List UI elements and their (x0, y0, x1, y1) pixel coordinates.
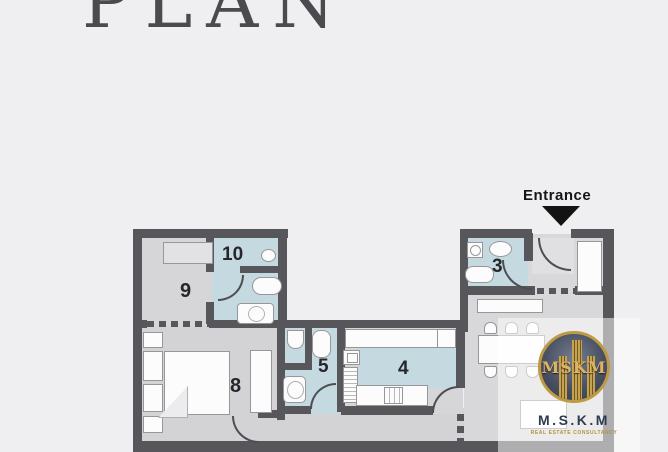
room-4-label: 4 (398, 358, 409, 380)
room3-toilet (465, 266, 494, 283)
wall-mid-top (277, 320, 465, 328)
mskm-logo-emblem: MSKM (538, 331, 610, 403)
washing-machine-door-icon (470, 245, 481, 256)
room10-sink (261, 249, 276, 262)
room5-toilet (312, 330, 331, 358)
dining-chair (484, 366, 497, 378)
wall-kitchen-bottom (341, 406, 433, 415)
room5-sink-bowl-icon (287, 381, 304, 399)
wall-right-wing-top-left (460, 229, 532, 238)
kitchen-sink-bowl-icon (347, 353, 358, 363)
kitchen-counter-top (345, 329, 456, 348)
wall-room10-bottom (240, 266, 282, 273)
room-10-label: 10 (222, 244, 243, 266)
room-8-label: 8 (230, 375, 241, 398)
opening-corridor-dining (457, 414, 464, 444)
wall-room5-inner-v (305, 328, 312, 370)
logo-emblem-text: MSKM (542, 358, 607, 377)
wall-left-wing-right (278, 229, 287, 328)
floor-plan-page: PLAN Entrance (0, 0, 668, 452)
wall-outer-left (133, 229, 142, 452)
entrance-label: Entrance (523, 187, 591, 204)
wall-room9-bottom-left (133, 320, 147, 328)
nightstand-bottom (143, 416, 163, 433)
bathtub (252, 277, 282, 295)
logo-tagline: REAL ESTATE CONSULTANCY (526, 430, 622, 436)
nightstand-top (143, 332, 163, 348)
kitchen-inner-floor (358, 346, 460, 388)
wall-right-wing-top-right (571, 229, 614, 238)
wall-room3-right (524, 233, 533, 261)
room-3-label: 3 (492, 256, 503, 278)
dining-buffet (477, 299, 543, 313)
bed-pillow-1 (143, 351, 163, 381)
wall-room5-bottom-stub (277, 406, 311, 414)
room-9-label: 9 (180, 280, 191, 303)
wall-room9-ensuite (206, 302, 214, 324)
wall-room8-room5 (277, 320, 285, 420)
bed-pillow-2 (143, 384, 163, 412)
logo-company-name: M.S.K.M (528, 412, 620, 428)
shower-drain-icon (248, 306, 265, 322)
room8-wardrobe (250, 350, 272, 413)
wall-kitchen-right (456, 320, 465, 388)
entrance-arrow-icon (542, 206, 580, 226)
kitchen-fridge-divider (437, 329, 438, 348)
room3-sink (489, 241, 512, 257)
kitchen-stove (384, 387, 403, 404)
opening-hall-dining (537, 288, 575, 294)
room9-closet (163, 242, 213, 264)
room-5-label: 5 (318, 356, 329, 378)
opening-room9-room8 (147, 321, 209, 327)
hall-closet (577, 241, 602, 292)
page-title: PLAN (82, 0, 349, 38)
room5-shower-head (287, 330, 304, 349)
dining-chair (484, 322, 497, 334)
